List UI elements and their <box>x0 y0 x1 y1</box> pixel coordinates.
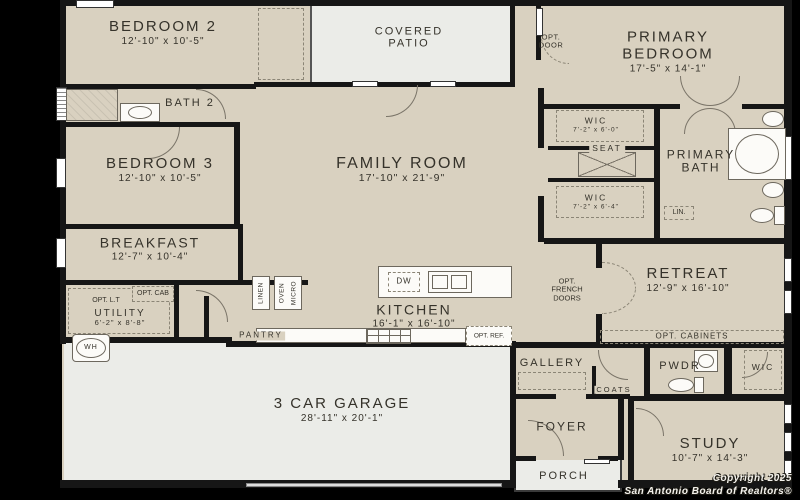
study-dims: 10'-7" x 14'-3" <box>672 453 749 464</box>
primary-bedroom-dims: 17'-5" x 14'-1" <box>593 63 743 74</box>
opt-cab-label: OPT. CAB <box>136 290 170 298</box>
kitchen-sink-bowl <box>451 275 467 289</box>
retreat-dims: 12'-9" x 16'-10" <box>646 283 729 294</box>
toilet-tank <box>694 377 704 393</box>
porch-name: PORCH <box>539 470 589 482</box>
shower-tub <box>66 89 118 121</box>
wall-segment <box>254 82 514 87</box>
bedroom3-dims: 12'-10" x 10'-5" <box>106 173 214 184</box>
garage-left-area <box>64 342 230 484</box>
coats-label: COATS <box>594 386 633 394</box>
window-marker <box>784 432 792 452</box>
pantry-label: PANTRY <box>237 332 285 341</box>
wall-segment <box>62 224 240 229</box>
wall-segment <box>62 280 308 285</box>
toilet-tank <box>774 206 785 225</box>
garage-name: 3 CAR GARAGE <box>267 396 417 413</box>
bath2-sink <box>128 106 152 119</box>
family-room-dims: 17'-10" x 21'-9" <box>336 173 468 185</box>
opt-ref-label: OPT. REF. <box>472 332 506 339</box>
kitchen-dims: 16'-1" x 16'-10" <box>372 318 455 329</box>
wall-segment <box>548 178 654 182</box>
kitchen-name: KITCHEN <box>372 303 455 319</box>
wall-segment <box>544 238 792 244</box>
primary-sink <box>762 111 784 127</box>
breakfast-dims: 12'-7" x 10'-4" <box>100 251 200 262</box>
closet-seat-box <box>578 152 636 177</box>
wall-segment <box>514 456 536 461</box>
door-threshold <box>352 81 378 87</box>
lin-label: LIN. <box>673 209 686 217</box>
wall-segment <box>654 104 660 242</box>
window-marker <box>76 0 114 8</box>
bedroom2-dims: 12'-10" x 10'-5" <box>109 36 217 47</box>
wall-segment <box>742 104 790 109</box>
bathtub-basin <box>735 134 779 174</box>
floor-plan: BEDROOM 212'-10" x 10'-5" COVERED PATIO … <box>0 0 800 500</box>
breakfast-name: BREAKFAST <box>100 236 200 252</box>
door-threshold <box>584 459 610 464</box>
wall-segment <box>538 88 544 148</box>
wall-segment <box>644 342 650 398</box>
primary-bath-name: PRIMARY BATH <box>662 149 740 176</box>
window-marker <box>784 404 792 424</box>
wall-segment <box>234 122 240 229</box>
window-marker <box>784 258 792 282</box>
wall-segment <box>174 284 179 342</box>
wall-segment <box>238 224 243 284</box>
opt-door-label: OPT. DOOR <box>533 34 569 51</box>
wall-segment <box>510 341 516 488</box>
opt-french-doors-label: OPT. FRENCH DOORS <box>544 277 590 302</box>
wic-top-dims: 7'-2" x 6'-0" <box>573 126 619 133</box>
window-marker <box>56 158 66 188</box>
wic-bottom-dims: 7'-2" x 6'-4" <box>573 203 619 210</box>
micro-label: MICRO <box>291 281 298 305</box>
family-room-name: FAMILY ROOM <box>336 155 468 173</box>
kitchen-sink-bowl <box>432 275 448 289</box>
wall-segment <box>512 394 556 399</box>
bath2-name: BATH 2 <box>165 97 215 109</box>
garage-door-marker <box>246 483 502 487</box>
copyright-line1: Copyright 2025 <box>713 473 792 484</box>
window-marker <box>56 238 66 268</box>
kitchen-counter <box>256 328 466 343</box>
pwdr-name: PWDR <box>659 360 701 372</box>
garage-dims: 28'-11" x 20'-1" <box>267 413 417 424</box>
wall-segment <box>618 398 624 460</box>
opt-cabinets-label: OPT. CABINETS <box>652 333 731 342</box>
study-name: STUDY <box>672 436 749 453</box>
foyer-name: FOYER <box>536 420 587 433</box>
wall-segment <box>544 0 790 6</box>
toilet-bowl <box>668 378 694 392</box>
wic-entry-name: WIC <box>752 363 775 373</box>
gallery-dashed-box <box>518 372 586 390</box>
primary-bedroom-name: PRIMARY BEDROOM <box>593 30 743 64</box>
retreat-name: RETREAT <box>646 266 729 283</box>
covered-patio-name: COVERED PATIO <box>364 26 454 51</box>
toilet-bowl <box>750 208 774 223</box>
wic-top-name: WIC <box>573 117 619 127</box>
wall-segment <box>628 398 634 486</box>
utility-dims: 6'-2" x 8'-8" <box>94 319 145 327</box>
primary-sink <box>762 182 784 198</box>
dw-label: DW <box>396 278 411 287</box>
wall-segment <box>724 342 732 398</box>
opt-lt-label: OPT. L.T <box>92 297 120 305</box>
oven-label: OVEN <box>279 283 286 303</box>
wall-segment <box>538 196 544 242</box>
closet-dashed-box <box>258 8 304 80</box>
window-marker <box>784 290 792 314</box>
bedroom2-name: BEDROOM 2 <box>109 19 217 36</box>
seat-label: SEAT <box>589 144 625 154</box>
copyright-line2: San Antonio Board of Realtors® <box>624 486 792 497</box>
wall-segment <box>628 396 792 401</box>
wh-label: WH <box>84 344 98 352</box>
bedroom3-name: BEDROOM 3 <box>106 156 214 173</box>
wall-segment <box>510 2 515 87</box>
door-threshold <box>430 81 456 87</box>
gallery-name: GALLERY <box>520 357 585 369</box>
wic-bottom-name: WIC <box>573 194 619 204</box>
linen-label: LINEN <box>258 282 265 304</box>
wall-segment <box>62 0 544 6</box>
cooktop <box>366 329 411 344</box>
